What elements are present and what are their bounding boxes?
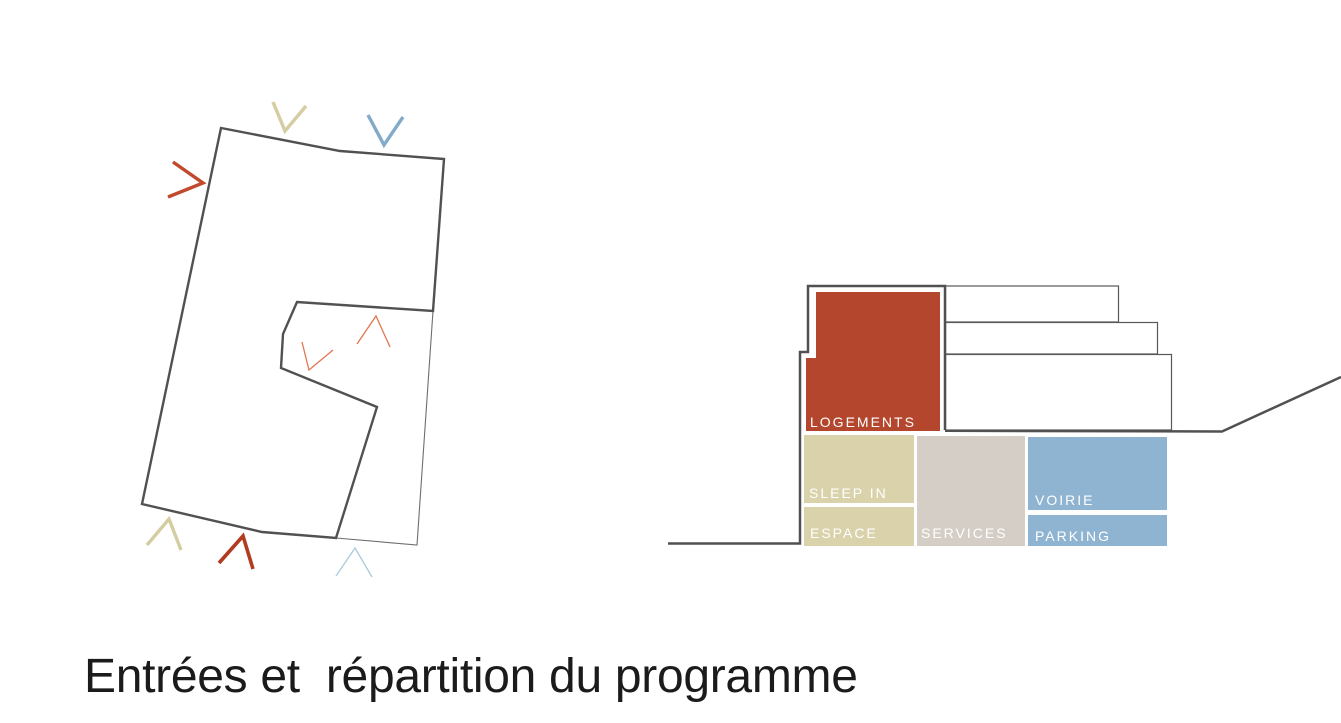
entrance-arrow-west-red-icon bbox=[168, 162, 203, 197]
site-boundary-line bbox=[336, 311, 433, 545]
label-espace: ESPACE bbox=[810, 525, 878, 541]
block-logements bbox=[806, 292, 940, 431]
roof-step-3 bbox=[946, 355, 1172, 431]
entrance-arrow-south-tan-icon bbox=[147, 519, 181, 550]
courtyard-arrow-orange-up-icon bbox=[357, 316, 390, 347]
entrance-arrow-south-lightblue-icon bbox=[336, 548, 372, 577]
label-logements: LOGEMENTS bbox=[810, 414, 916, 430]
label-parking: PARKING bbox=[1035, 528, 1111, 544]
diagrams-svg: LOGEMENTS SLEEP IN ESPACE SERVICES VOIRI… bbox=[0, 0, 1341, 723]
roof-step-2 bbox=[946, 323, 1158, 355]
roof-step-1 bbox=[946, 286, 1119, 322]
entrance-plan-diagram bbox=[142, 102, 444, 577]
entrance-arrow-north-tan-icon bbox=[273, 102, 306, 131]
architecture-program-page: LOGEMENTS SLEEP IN ESPACE SERVICES VOIRI… bbox=[0, 0, 1341, 723]
entrance-arrow-north-blue-icon bbox=[368, 115, 403, 145]
label-sleep-in: SLEEP IN bbox=[809, 485, 888, 501]
entrance-arrow-south-red-icon bbox=[219, 536, 253, 569]
label-voirie: VOIRIE bbox=[1035, 492, 1094, 508]
program-section-diagram: LOGEMENTS SLEEP IN ESPACE SERVICES VOIRI… bbox=[668, 286, 1341, 546]
page-title: Entrées et répartition du programme bbox=[84, 648, 858, 706]
label-services: SERVICES bbox=[921, 525, 1008, 541]
courtyard-arrow-orange-down-icon bbox=[302, 342, 333, 370]
